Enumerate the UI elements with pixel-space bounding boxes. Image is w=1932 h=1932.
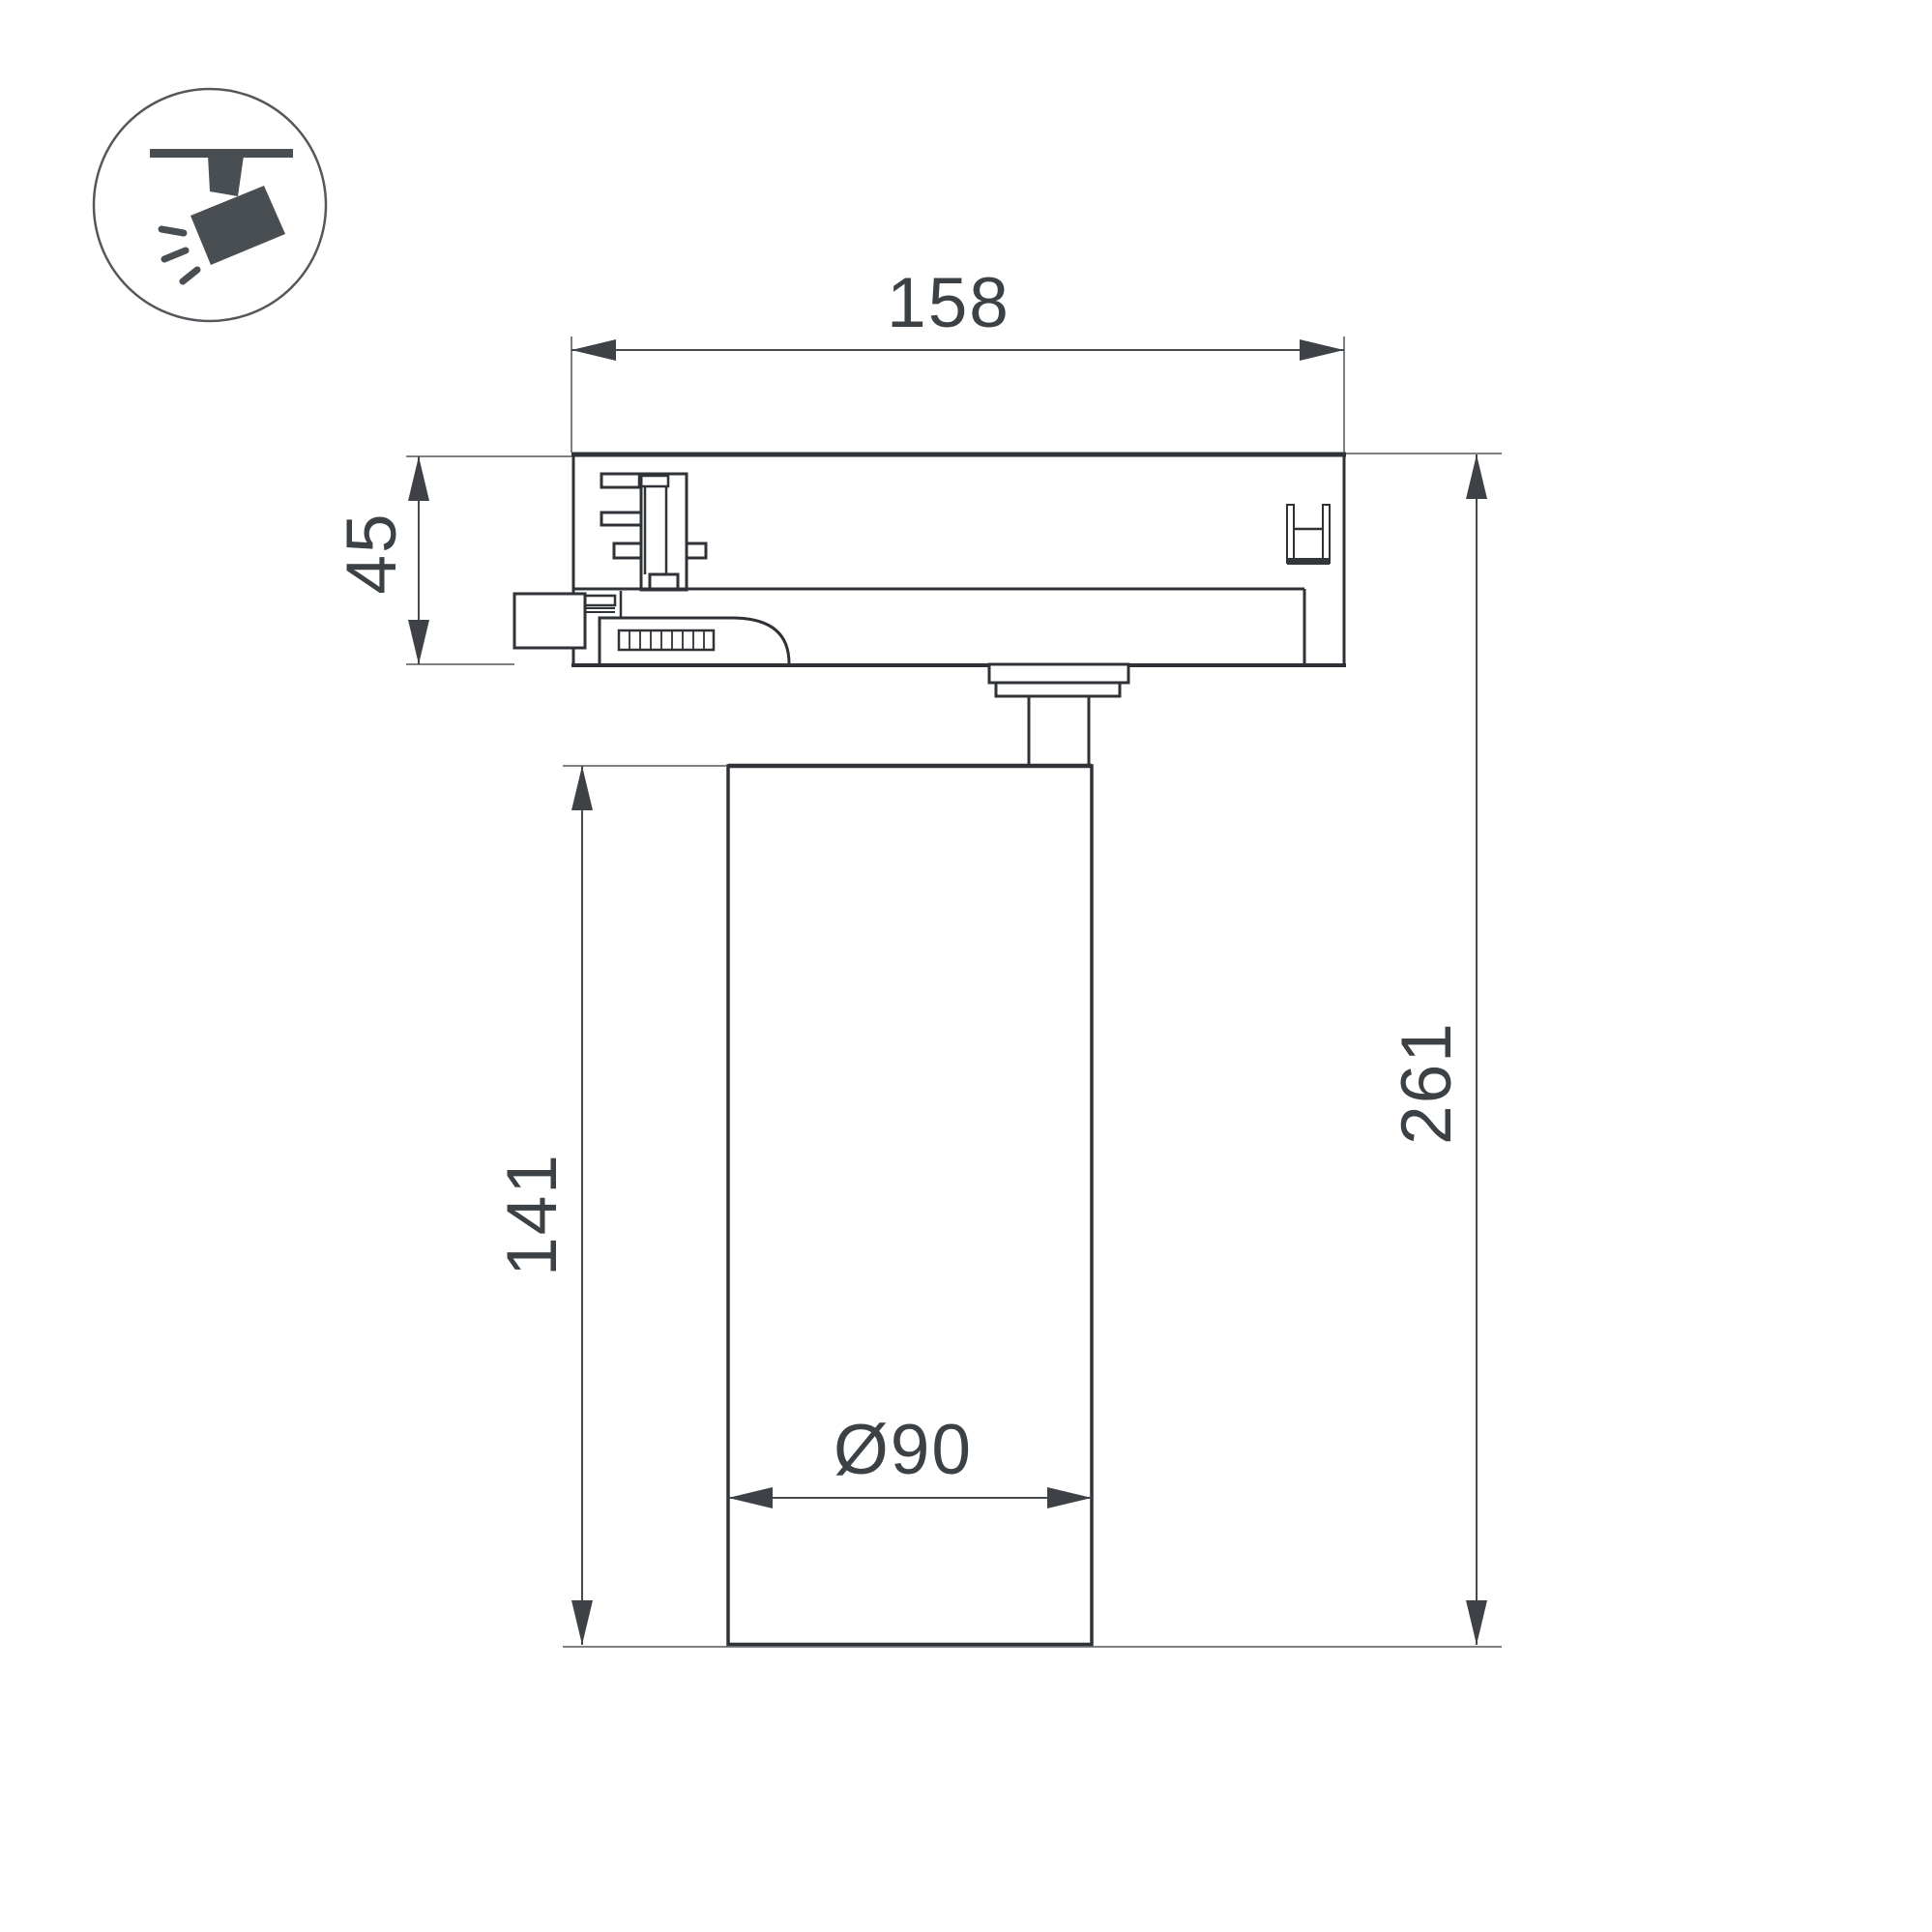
clip-bottom-bar xyxy=(1287,558,1330,565)
arrowhead-down xyxy=(571,1600,593,1645)
dimension-body-height-141: 141 xyxy=(493,766,726,1645)
technical-drawing-page: 158 45 141 261 Ø90 xyxy=(0,0,1932,1932)
contact-prong-bottom xyxy=(614,543,641,558)
track-adapter xyxy=(514,454,1346,665)
cover-outline xyxy=(600,618,789,664)
contact-pin-cap xyxy=(639,476,668,486)
contact-tab-right xyxy=(687,543,706,558)
retainer-clip xyxy=(1287,505,1330,565)
clip-left-bar xyxy=(1287,505,1294,563)
contact-prong-top xyxy=(601,474,641,487)
ribbed-grip xyxy=(619,630,714,650)
arrowhead-down xyxy=(408,620,429,664)
icon-stem xyxy=(208,156,244,196)
drawing-svg: 158 45 141 261 Ø90 xyxy=(0,0,1932,1932)
neck-step-1 xyxy=(989,664,1128,683)
contact-column xyxy=(641,474,687,590)
dim-label-diameter: Ø90 xyxy=(834,1411,973,1489)
arrowhead-up xyxy=(1466,454,1487,499)
swivel-neck xyxy=(989,664,1128,766)
arrowhead-left xyxy=(571,339,616,361)
icon-circle xyxy=(94,89,326,321)
lamp-body xyxy=(728,766,1092,1645)
dim-label-total-height: 261 xyxy=(1388,1021,1466,1145)
cylinder-outline xyxy=(728,766,1092,1645)
contact-prong-middle xyxy=(601,512,641,525)
icon-light-ray xyxy=(161,229,184,233)
dim-label-adapter-height: 45 xyxy=(333,512,411,594)
arrowhead-right xyxy=(1300,339,1344,361)
arrowhead-up xyxy=(408,456,429,501)
neck-step-2 xyxy=(996,683,1120,696)
contact-assembly xyxy=(601,474,706,590)
ribbed-grip-lines xyxy=(629,630,704,650)
dim-label-width: 158 xyxy=(887,264,1010,342)
adapter-cover xyxy=(600,591,789,664)
arrowhead-up xyxy=(571,766,593,810)
dimension-width-158: 158 xyxy=(571,264,1344,453)
track-spotlight-icon xyxy=(94,89,326,321)
dim-label-body-height: 141 xyxy=(493,1153,571,1276)
clip-right-bar xyxy=(1323,505,1330,563)
arrowhead-down xyxy=(1466,1600,1487,1645)
latch-block xyxy=(514,594,585,648)
latch-connector xyxy=(585,596,615,605)
